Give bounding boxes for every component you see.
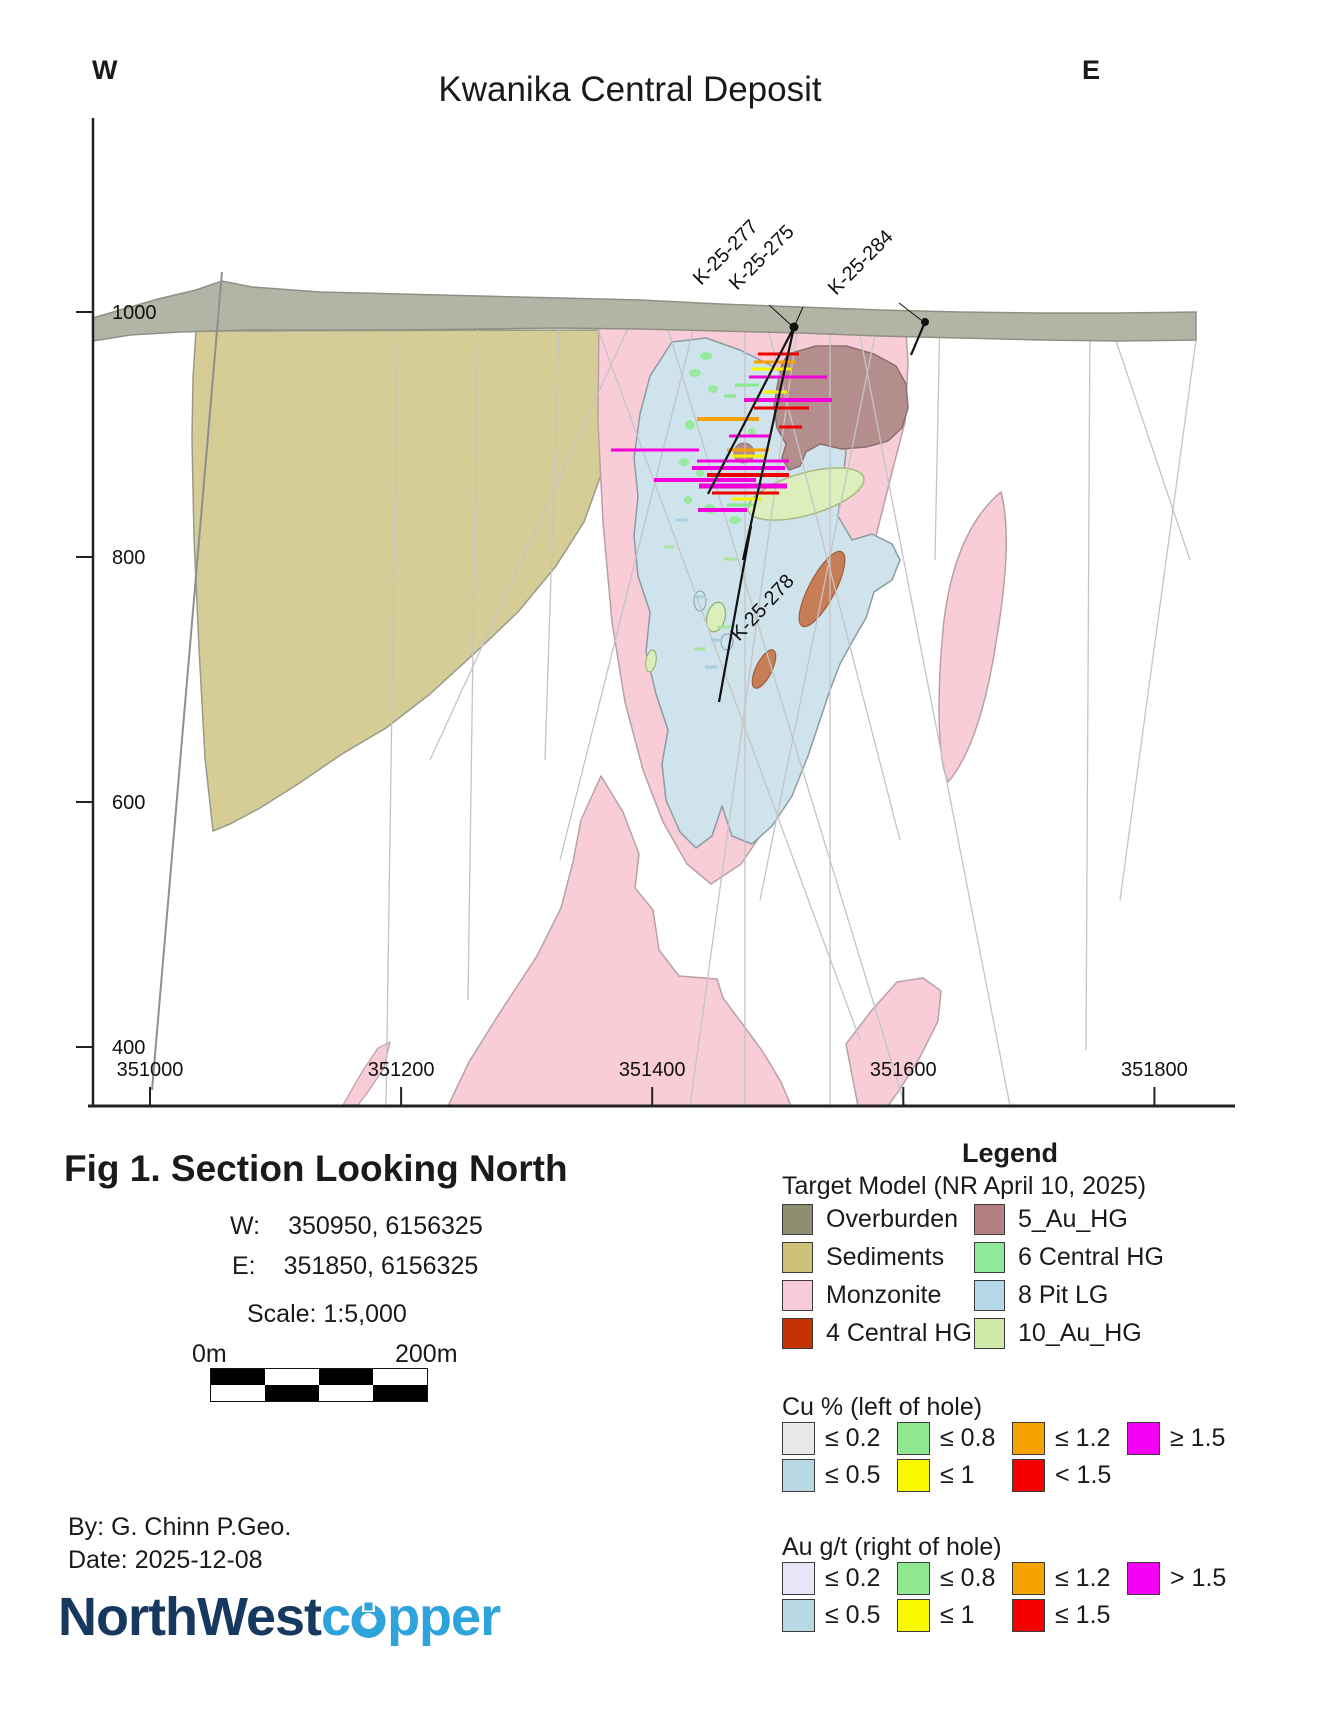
- region-sediments: [192, 330, 612, 831]
- legend-item: Monzonite: [782, 1276, 974, 1314]
- legend-label: > 1.5: [1170, 1564, 1226, 1593]
- target-model-title: Target Model (NR April 10, 2025): [782, 1172, 1146, 1201]
- legend-label: Monzonite: [826, 1281, 941, 1310]
- legend-swatch: [782, 1280, 813, 1311]
- east-coordinates: E:351850, 6156325: [232, 1252, 478, 1281]
- legend-swatch: [782, 1422, 815, 1455]
- legend-item: < 1.5: [1012, 1457, 1127, 1494]
- legend-swatch: [1127, 1562, 1160, 1595]
- legend-swatch: [782, 1459, 815, 1492]
- figure-page: K-25-277 K-25-275 K-25-284 K-25-278 1000…: [0, 0, 1321, 1710]
- legend-swatch: [974, 1242, 1005, 1273]
- legend-item: ≤ 1.5: [1012, 1597, 1127, 1634]
- legend-swatch: [782, 1599, 815, 1632]
- legend-label: ≥ 1.5: [1170, 1424, 1225, 1453]
- legend-label: ≤ 1.2: [1055, 1424, 1110, 1453]
- legend-item: ≤ 0.5: [782, 1597, 897, 1634]
- legend-item: ≤ 0.5: [782, 1457, 897, 1494]
- au-legend-title: Au g/t (right of hole): [782, 1533, 1002, 1562]
- drill-collar: [921, 318, 929, 326]
- legend-swatch: [897, 1562, 930, 1595]
- east-coord-value: 351850, 6156325: [284, 1252, 479, 1280]
- author-line: By: G. Chinn P.Geo.: [68, 1513, 291, 1542]
- elevation-axis: 1000800600400: [76, 302, 157, 1059]
- copper-o-icon: [350, 1601, 387, 1638]
- west-coordinates: W:350950, 6156325: [230, 1212, 483, 1241]
- region-monzonite-lens: [939, 492, 1006, 782]
- legend-label: 6 Central HG: [1018, 1243, 1164, 1272]
- east-coord-label: E:: [232, 1252, 256, 1280]
- legend-label: 5_Au_HG: [1018, 1205, 1128, 1234]
- legend-label: ≤ 0.8: [940, 1564, 995, 1593]
- easting-tick-label: 351800: [1121, 1059, 1188, 1081]
- legend-item: ≥ 1.5: [1127, 1420, 1247, 1457]
- east-corner-label: E: [1082, 55, 1100, 86]
- legend-label: ≤ 0.5: [825, 1461, 880, 1490]
- legend-swatch: [974, 1318, 1005, 1349]
- elevation-tick-label: 400: [112, 1037, 145, 1059]
- legend-label: ≤ 1: [940, 1461, 975, 1490]
- west-corner-label: W: [92, 55, 117, 86]
- legend-title: Legend: [880, 1138, 1140, 1169]
- legend-swatch: [897, 1459, 930, 1492]
- legend-item: 6 Central HG: [974, 1238, 1184, 1276]
- target-model-legend: Overburden5_Au_HGSediments6 Central HGMo…: [782, 1200, 1184, 1352]
- legend-label: 10_Au_HG: [1018, 1319, 1142, 1348]
- legend-label: < 1.5: [1055, 1461, 1111, 1490]
- legend-item: Overburden: [782, 1200, 974, 1238]
- legend-swatch: [782, 1204, 813, 1235]
- legend-label: 8 Pit LG: [1018, 1281, 1108, 1310]
- legend-item: 5_Au_HG: [974, 1200, 1184, 1238]
- legend-item: ≤ 1: [897, 1457, 1012, 1494]
- logo-copper-text: cpper: [321, 1587, 500, 1647]
- legend-label: ≤ 1.5: [1055, 1601, 1110, 1630]
- legend-swatch: [1012, 1422, 1045, 1455]
- legend-swatch: [782, 1242, 813, 1273]
- legend-swatch: [1012, 1459, 1045, 1492]
- drillhole-label: K-25-284: [824, 226, 898, 300]
- legend-item: ≤ 0.8: [897, 1420, 1012, 1457]
- page-title: Kwanika Central Deposit: [300, 70, 960, 110]
- west-coord-value: 350950, 6156325: [288, 1212, 483, 1240]
- date-line: Date: 2025-12-08: [68, 1546, 263, 1575]
- west-coord-label: W:: [230, 1212, 260, 1240]
- legend-item: ≤ 0.8: [897, 1560, 1012, 1597]
- legend-label: ≤ 0.2: [825, 1424, 880, 1453]
- legend-label: Sediments: [826, 1243, 944, 1272]
- easting-tick-label: 351200: [368, 1059, 435, 1081]
- legend-label: 4 Central HG: [826, 1319, 972, 1348]
- legend-item: 8 Pit LG: [974, 1276, 1184, 1314]
- easting-tick-label: 351400: [619, 1059, 686, 1081]
- company-logo: NorthWestcpper: [58, 1586, 500, 1648]
- scalebar-right-label: 200m: [395, 1340, 458, 1369]
- legend-swatch: [782, 1562, 815, 1595]
- legend-item: ≤ 0.2: [782, 1420, 897, 1457]
- au-legend: ≤ 0.2≤ 0.8≤ 1.2> 1.5≤ 0.5≤ 1≤ 1.5: [782, 1560, 1247, 1634]
- legend-item: ≤ 0.2: [782, 1560, 897, 1597]
- elevation-tick-label: 800: [112, 547, 145, 569]
- elevation-tick-label: 600: [112, 792, 145, 814]
- legend-swatch: [974, 1280, 1005, 1311]
- scalebar-left-label: 0m: [192, 1340, 227, 1369]
- legend-swatch: [1012, 1599, 1045, 1632]
- legend-item: Sediments: [782, 1238, 974, 1276]
- legend-swatch: [1127, 1422, 1160, 1455]
- legend-swatch: [1012, 1562, 1045, 1595]
- logo-northwest-text: NorthWest: [58, 1587, 321, 1647]
- drill-collar: [790, 323, 799, 332]
- legend-label: Overburden: [826, 1205, 958, 1234]
- easting-tick-label: 351000: [117, 1059, 184, 1081]
- cu-legend: ≤ 0.2≤ 0.8≤ 1.2≥ 1.5≤ 0.5≤ 1< 1.5: [782, 1420, 1247, 1494]
- legend-item: 10_Au_HG: [974, 1314, 1184, 1352]
- region-monzonite-wedge: [846, 978, 941, 1106]
- legend-label: ≤ 0.5: [825, 1601, 880, 1630]
- legend-item: ≤ 1: [897, 1597, 1012, 1634]
- easting-tick-label: 351600: [870, 1059, 937, 1081]
- legend-label: ≤ 1: [940, 1601, 975, 1630]
- legend-swatch: [897, 1422, 930, 1455]
- legend-swatch: [897, 1599, 930, 1632]
- figure-caption: Fig 1. Section Looking North: [64, 1148, 568, 1190]
- scale-bar: [210, 1368, 428, 1402]
- legend-item: 4 Central HG: [782, 1314, 974, 1352]
- legend-item: ≤ 1.2: [1012, 1560, 1127, 1597]
- legend-item: ≤ 1.2: [1012, 1420, 1127, 1457]
- elevation-tick-label: 1000: [112, 302, 157, 324]
- legend-label: ≤ 1.2: [1055, 1564, 1110, 1593]
- cu-legend-title: Cu % (left of hole): [782, 1393, 982, 1422]
- legend-label: ≤ 0.2: [825, 1564, 880, 1593]
- legend-label: ≤ 0.8: [940, 1424, 995, 1453]
- legend-swatch: [782, 1318, 813, 1349]
- scale-text: Scale: 1:5,000: [247, 1300, 407, 1329]
- legend-item: > 1.5: [1127, 1560, 1247, 1597]
- legend-swatch: [974, 1204, 1005, 1235]
